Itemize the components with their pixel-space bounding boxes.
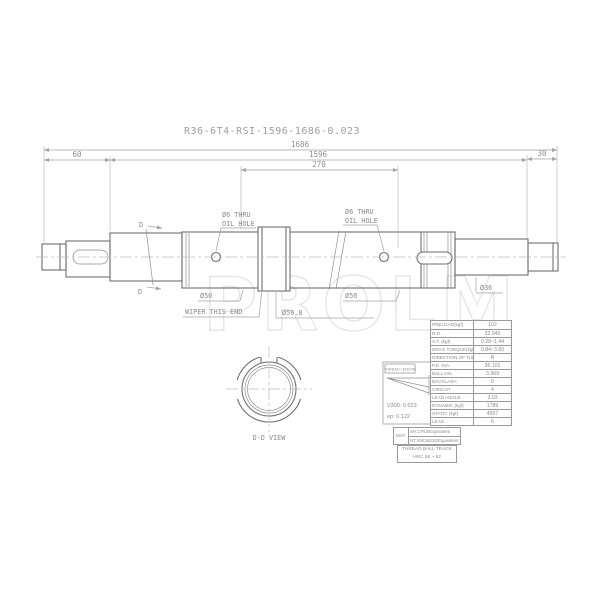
spec-row-lead: LEAD 6 [431,417,511,425]
spec-value: 32.045 [474,330,511,337]
oil-hole-left-line2: OIL HOLE [222,220,255,228]
dia50-right-label: Ø50 [345,292,357,300]
shaft-drawing-svg: PROLM R36-6T4-RSI-1596-1686-0.023 [0,0,600,600]
wiper-label: WIPER THIS END [185,308,242,316]
spec-label: BALL DIA. [431,370,474,377]
spec-row-rd: R.D. 32.045 [431,329,511,337]
spec-label: STATIC (kgf) [431,410,474,417]
spec-row-ball-dia: BALL DIA. 3.969 [431,369,511,377]
spec-label: PRELOAD(kgf) [431,321,474,329]
spec-label: P.E. DIA. [431,362,474,369]
hardness-line1: THREAD BALL TRACK [398,446,456,454]
oil-hole-callout-left: Ø6 THRU OIL HOLE [216,211,256,251]
section-d-bottom-label: D [138,288,142,296]
accuracy-header: THREAD LENGTH [384,368,416,372]
section-d-top-label: D [139,221,143,229]
oil-hole-right-line1: Ø6 THRU [345,208,374,216]
spec-value: 6 [474,418,511,425]
spec-label: S.F. (kgf) [431,338,474,345]
spec-value: 0.28~1.44 [474,338,511,345]
spec-value: 0.84~3.60 [474,346,511,353]
spec-row-lead-angle: LEAD ANGLE 3.03 [431,393,511,401]
material-nut: NT.SNCM220/Equivalent [409,436,460,444]
material-label: MAT. [394,428,409,444]
dim-thread: 1596 [309,150,328,159]
spec-label: LEAD ANGLE [431,394,474,401]
oil-hole-left-line1: Ø6 THRU [222,211,251,219]
hardness-line2: HRC 56 ~ 62 [398,454,456,462]
dim-right-end: 30 [537,149,547,158]
section-view-dd: D-D VIEW [226,346,312,442]
spec-label: R.D. [431,330,474,337]
dim-left-end: 60 [72,150,82,159]
spec-row-drag-torque: DRAG TORQUE(kgf-m) 0.84~3.60 [431,345,511,353]
spec-label: LEAD [431,418,474,425]
hardness-note: THREAD BALL TRACK HRC 56 ~ 62 [397,445,457,463]
dia36-label: Ø36 [480,284,492,292]
oil-hole-callout-right: Ø6 THRU OIL HOLE [343,208,384,251]
spec-label: CIRCUIT [431,386,474,393]
dia598-label: Ø59.8 [282,309,302,317]
spec-row-dynamic: DYNAMIC (kgf) 1789 [431,401,511,409]
spec-value: 0 [474,378,511,385]
dim-mid: 270 [312,160,326,169]
accuracy-v300: V300: 0.023 [387,403,417,409]
spec-table: PRELOAD(kgf) 102 R.D. 32.045 S.F. (kgf) … [430,320,512,426]
spec-label: DYNAMIC (kgf) [431,402,474,409]
spec-value: 36.101 [474,362,511,369]
spec-value: 4957 [474,410,511,417]
drawing-title: R36-6T4-RSI-1596-1686-0.023 [184,126,360,137]
lead-accuracy-box: THREAD LENGTH V300: 0.023 ep: 0.122 [383,362,433,424]
section-view-label: D-D VIEW [253,434,287,442]
spec-value: 3.969 [474,370,511,377]
drawing-canvas: PROLM R36-6T4-RSI-1596-1686-0.023 [0,0,600,600]
spec-row-sf: S.F. (kgf) 0.28~1.44 [431,337,511,345]
spec-value: R [474,354,511,361]
spec-label: BACKLASH [431,378,474,385]
spec-value: 4 [474,386,511,393]
spec-value: 102 [474,321,511,329]
spec-row-backlash: BACKLASH 0 [431,377,511,385]
oil-hole-right-line2: OIL HOLE [345,217,378,225]
dia50-left-label: Ø50 [200,292,212,300]
section-cut-d: D D [138,221,162,296]
spec-row-direction: DIRECTION OF TURN R [431,353,511,361]
spec-value: 1789 [474,402,511,409]
accuracy-ep: ep: 0.122 [387,414,410,420]
spec-label: DRAG TORQUE(kgf-m) [431,346,474,353]
dim-overall: 1686 [291,140,310,149]
spec-row-preload: PRELOAD(kgf) 102 [431,321,511,329]
material-table: MAT. SH.CF53/Equivalent NT.SNCM220/Equiv… [393,427,461,463]
spec-row-static: STATIC (kgf) 4957 [431,409,511,417]
spec-value: 3.03 [474,394,511,401]
spec-row-circuit: CIRCUIT 4 [431,385,511,393]
spec-row-pe-dia: P.E. DIA. 36.101 [431,361,511,369]
spec-label: DIRECTION OF TURN [431,354,474,361]
material-shaft: SH.CF53/Equivalent [409,428,460,436]
